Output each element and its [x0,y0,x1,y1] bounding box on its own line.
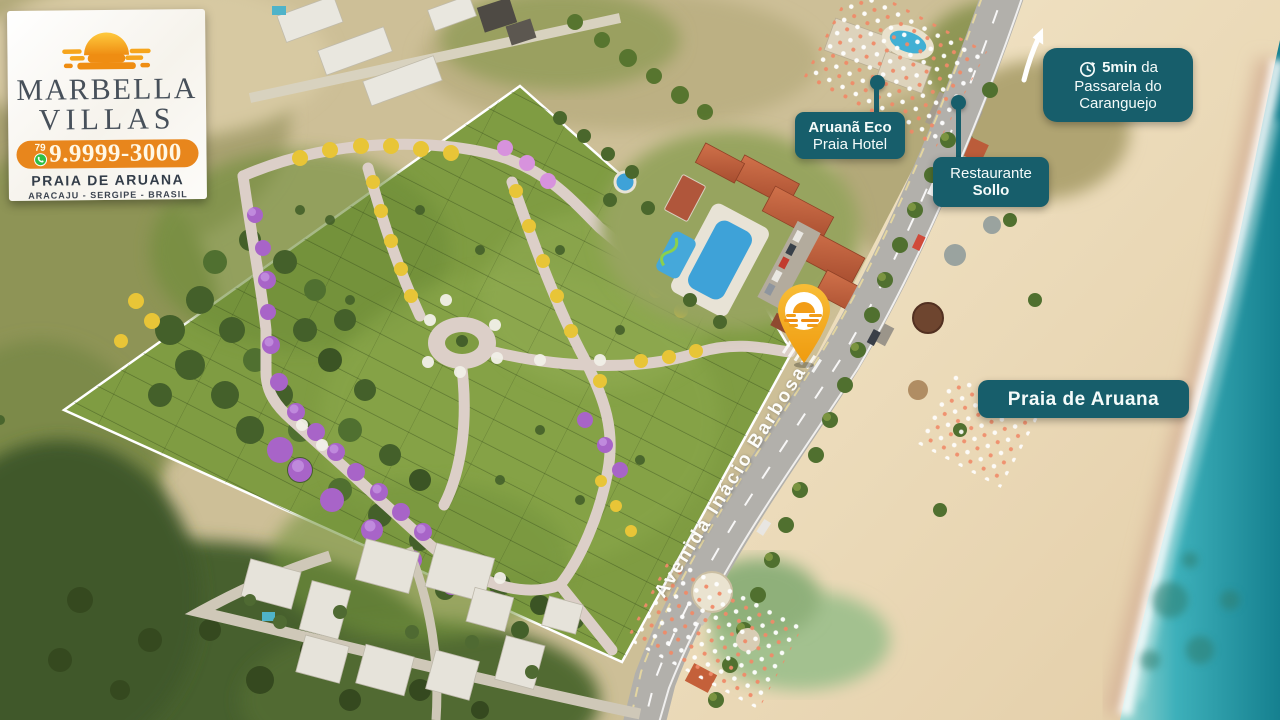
location-map: MARBELLA VILLAS 79 9.9999-3000 PRAIA DE … [0,0,1280,720]
phone-number: 9.9999-3000 [49,139,182,168]
sunset-logo-icon [45,21,168,73]
brand-logo-card: MARBELLA VILLAS 79 9.9999-3000 PRAIA DE … [7,9,207,201]
distance-minutes: 5min [1102,59,1137,76]
hotel-subtitle: Praia Hotel [813,136,887,153]
hotel-name: Aruanã Eco [808,119,891,136]
restaurant-marker-stem [956,104,961,162]
distance-line2: Passarela do [1074,78,1162,95]
distance-suffix: da [1137,59,1158,76]
brand-region: ARACAJU - SERGIPE - BRASIL [28,189,188,201]
brand-name-line2: VILLAS [39,104,176,135]
distance-line1: 5min da [1078,59,1158,78]
callout-distance: 5min da Passarela do Caranguejo [1043,48,1193,122]
roundabout [428,317,496,369]
phone-area-code: 79 [35,143,46,152]
restaurant-type: Restaurante [950,165,1032,182]
direction-arrow-icon [1012,20,1056,86]
phone-prefix: 79 [33,143,47,166]
clock-icon [1078,59,1097,78]
callout-hotel: Aruanã Eco Praia Hotel [795,112,905,159]
brand-name-line1: MARBELLA [16,74,197,106]
whatsapp-icon [33,152,47,166]
brand-location: PRAIA DE ARUANA [31,171,184,189]
callout-restaurant: Restaurante Sollo [933,157,1049,207]
location-pin-icon [773,281,835,369]
phone-badge: 79 9.9999-3000 [16,139,198,169]
beach-name: Praia de Aruana [1008,391,1159,408]
callout-beach: Praia de Aruana [978,380,1189,418]
restaurant-name: Sollo [973,182,1010,199]
distance-line3: Caranguejo [1079,95,1157,112]
